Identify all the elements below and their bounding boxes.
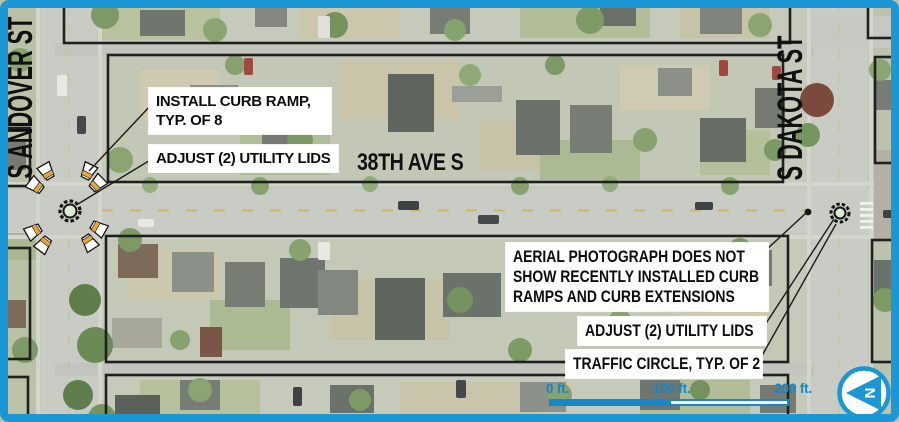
aerial-terrain bbox=[0, 0, 899, 422]
callout-text: TRAFFIC CIRCLE, TYP. OF 2 bbox=[573, 354, 722, 374]
callout-install-curb-ramp: INSTALL CURB RAMP, TYP. OF 8 bbox=[149, 88, 331, 134]
scale-bar: 0 ft. 100 ft. 200 ft. bbox=[546, 381, 812, 406]
north-arrow-icon: N bbox=[835, 364, 893, 422]
scale-bar-graphic bbox=[549, 399, 789, 406]
street-label-s-andover-st: S ANDOVER ST bbox=[1, 17, 41, 178]
scale-label-0: 0 ft. bbox=[546, 381, 569, 396]
callout-text: RAMPS AND CURB EXTENSIONS bbox=[513, 287, 716, 307]
scale-bar-segment-empty bbox=[669, 399, 789, 406]
callout-text: AERIAL PHOTOGRAPH DOES NOT bbox=[513, 247, 716, 267]
callout-traffic-circle: TRAFFIC CIRCLE, TYP. OF 2 bbox=[566, 350, 762, 378]
callout-adjust-utility-lids-left: ADJUST (2) UTILITY LIDS bbox=[149, 145, 338, 172]
utility-lid-dot bbox=[805, 209, 812, 216]
callout-text: TYP. OF 8 bbox=[156, 111, 324, 130]
street-label-38th-ave-s: 38TH AVE S bbox=[357, 149, 463, 177]
aerial-photo bbox=[0, 0, 899, 422]
callout-aerial-note: AERIAL PHOTOGRAPH DOES NOT SHOW RECENTLY… bbox=[506, 243, 768, 311]
callout-text: SHOW RECENTLY INSTALLED CURB bbox=[513, 267, 716, 287]
scale-label-100: 100 ft. bbox=[653, 381, 691, 396]
north-arrow-letter: N bbox=[861, 388, 878, 399]
callout-text: INSTALL CURB RAMP, bbox=[156, 92, 324, 111]
scale-bar-segment-filled bbox=[549, 399, 669, 406]
street-label-s-dakota-st: S DAKOTA ST bbox=[771, 27, 811, 188]
callout-text: ADJUST (2) UTILITY LIDS bbox=[156, 149, 331, 168]
scale-label-200: 200 ft. bbox=[774, 381, 812, 396]
plan-map: 38TH AVE S S ANDOVER ST S DAKOTA ST INST… bbox=[0, 0, 899, 422]
callout-text: ADJUST (2) UTILITY LIDS bbox=[585, 321, 728, 341]
callout-adjust-utility-lids-right: ADJUST (2) UTILITY LIDS bbox=[578, 317, 766, 345]
